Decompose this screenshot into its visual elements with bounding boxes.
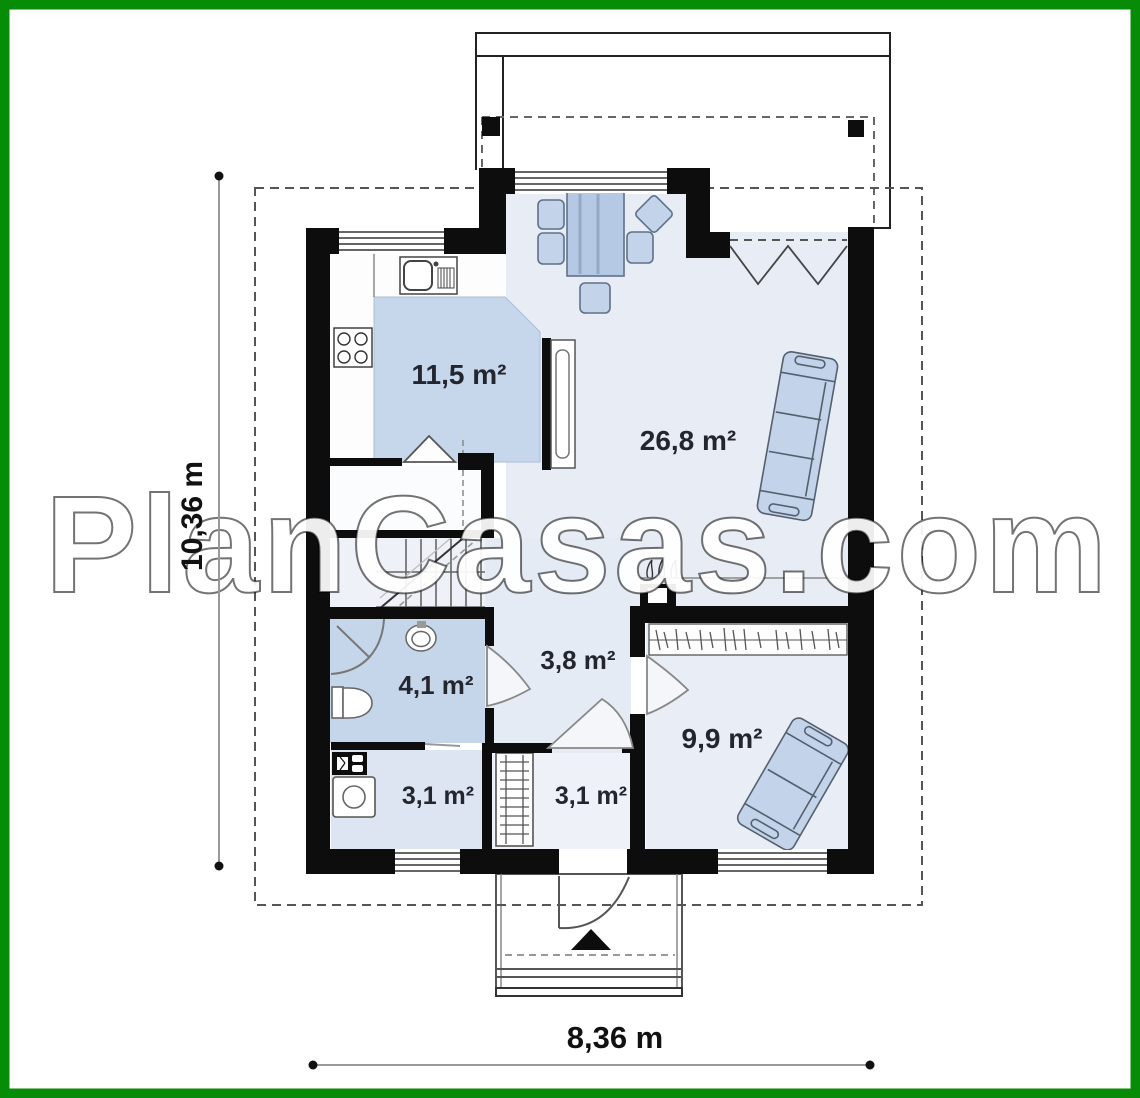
svg-text:10,36 m: 10,36 m	[176, 461, 209, 571]
svg-text:8,36 m: 8,36 m	[567, 1020, 664, 1055]
svg-text:3,8 m²: 3,8 m²	[540, 645, 615, 675]
svg-text:4,1 m²: 4,1 m²	[398, 670, 473, 700]
svg-text:3,1 m²: 3,1 m²	[555, 782, 627, 810]
svg-text:9,9 m²: 9,9 m²	[682, 723, 763, 754]
svg-text:3,1 m²: 3,1 m²	[402, 782, 474, 810]
svg-text:11,5 m²: 11,5 m²	[412, 359, 507, 390]
svg-text:26,8 m²: 26,8 m²	[640, 425, 737, 456]
